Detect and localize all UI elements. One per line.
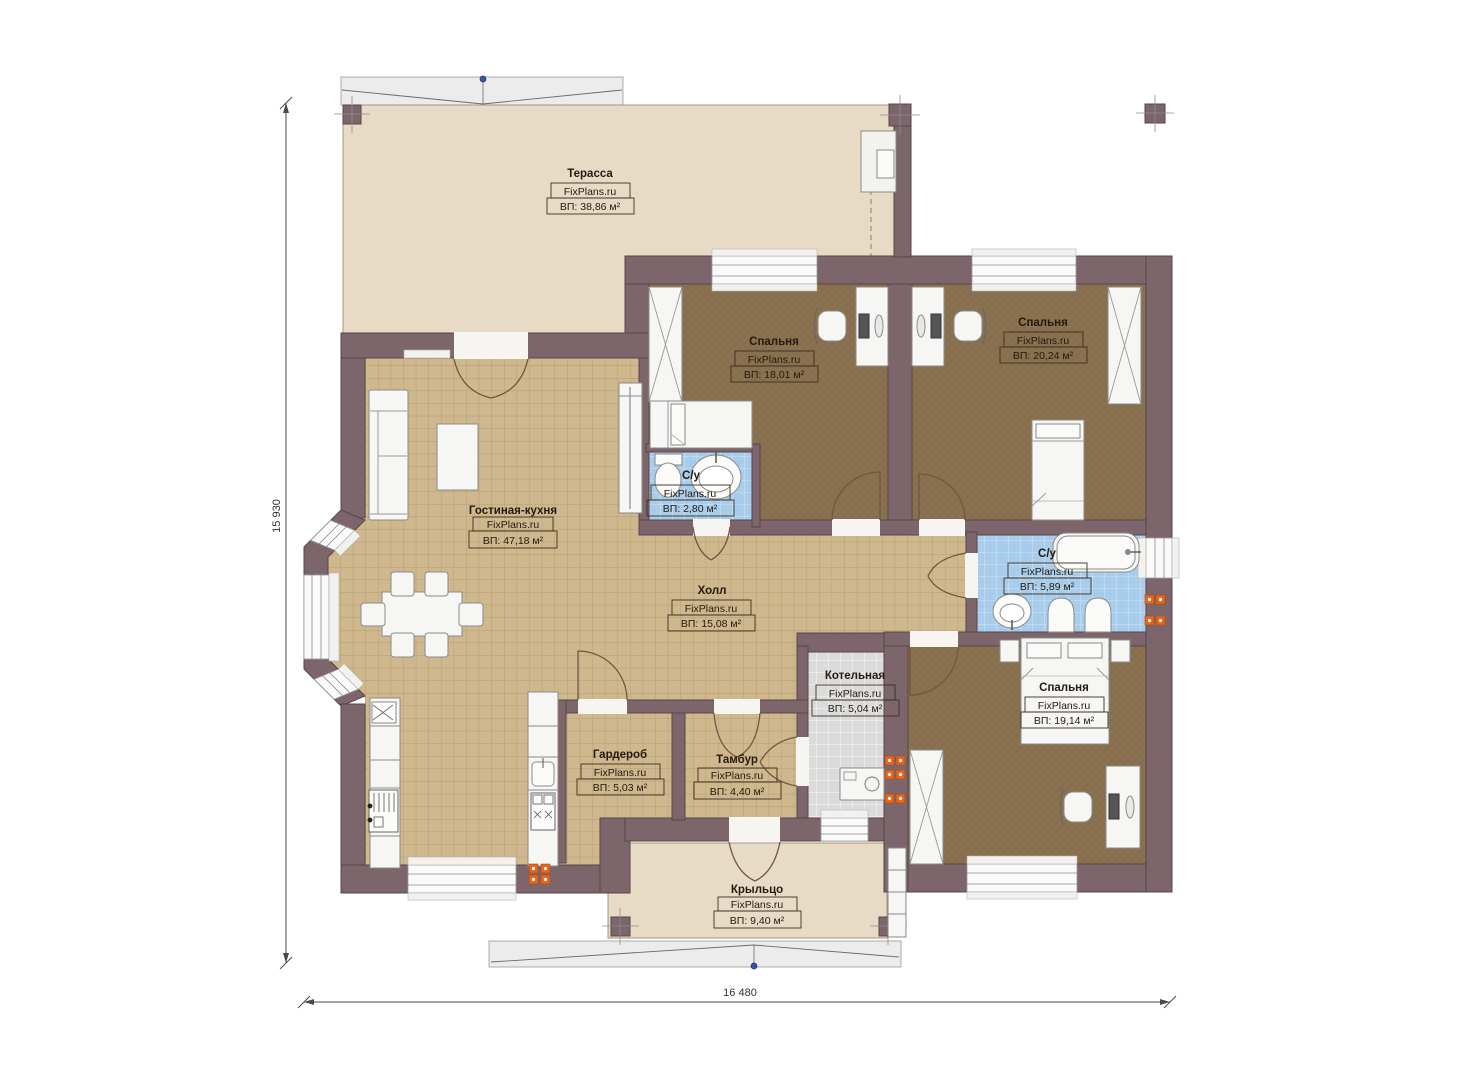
svg-text:15 930: 15 930: [271, 499, 283, 533]
svg-text:ВП: 2,80 м²: ВП: 2,80 м²: [663, 503, 718, 515]
svg-text:Гостиная-кухня: Гостиная-кухня: [469, 505, 557, 517]
svg-text:Спальня: Спальня: [749, 336, 799, 348]
svg-text:FixPlans.ru: FixPlans.ru: [748, 354, 801, 366]
svg-text:FixPlans.ru: FixPlans.ru: [1038, 700, 1091, 712]
svg-text:ВП: 18,01 м²: ВП: 18,01 м²: [744, 369, 805, 381]
svg-text:Гардероб: Гардероб: [593, 749, 647, 761]
svg-text:ВП: 15,08 м²: ВП: 15,08 м²: [681, 618, 742, 630]
svg-text:Терасса: Терасса: [567, 168, 613, 180]
svg-text:Холл: Холл: [698, 585, 727, 597]
svg-text:С/у: С/у: [682, 470, 701, 482]
svg-text:Тамбур: Тамбур: [716, 754, 758, 766]
svg-text:FixPlans.ru: FixPlans.ru: [1021, 566, 1074, 578]
svg-text:ВП: 38,86 м²: ВП: 38,86 м²: [560, 201, 621, 213]
svg-text:FixPlans.ru: FixPlans.ru: [594, 767, 647, 779]
svg-text:ВП: 20,24 м²: ВП: 20,24 м²: [1013, 350, 1074, 362]
svg-text:FixPlans.ru: FixPlans.ru: [711, 770, 764, 782]
svg-text:Крыльцо: Крыльцо: [731, 884, 783, 896]
svg-text:Спальня: Спальня: [1039, 682, 1089, 694]
svg-text:ВП: 5,04 м²: ВП: 5,04 м²: [828, 703, 883, 715]
svg-text:Котельная: Котельная: [825, 670, 885, 682]
svg-text:FixPlans.ru: FixPlans.ru: [829, 688, 882, 700]
svg-text:Спальня: Спальня: [1018, 317, 1068, 329]
svg-text:ВП: 9,40 м²: ВП: 9,40 м²: [730, 915, 785, 927]
svg-text:16 480: 16 480: [723, 987, 757, 999]
svg-text:FixPlans.ru: FixPlans.ru: [731, 899, 784, 911]
svg-text:FixPlans.ru: FixPlans.ru: [1017, 335, 1070, 347]
svg-text:С/у: С/у: [1038, 548, 1057, 560]
svg-text:FixPlans.ru: FixPlans.ru: [564, 186, 617, 198]
svg-text:ВП: 5,89 м²: ВП: 5,89 м²: [1020, 581, 1075, 593]
svg-text:ВП: 47,18 м²: ВП: 47,18 м²: [483, 535, 544, 547]
svg-text:ВП: 19,14 м²: ВП: 19,14 м²: [1034, 715, 1095, 727]
svg-text:FixPlans.ru: FixPlans.ru: [664, 488, 717, 500]
svg-text:FixPlans.ru: FixPlans.ru: [685, 603, 738, 615]
svg-text:ВП: 4,40 м²: ВП: 4,40 м²: [710, 786, 765, 798]
svg-text:ВП: 5,03 м²: ВП: 5,03 м²: [593, 782, 648, 794]
svg-text:FixPlans.ru: FixPlans.ru: [487, 519, 540, 531]
